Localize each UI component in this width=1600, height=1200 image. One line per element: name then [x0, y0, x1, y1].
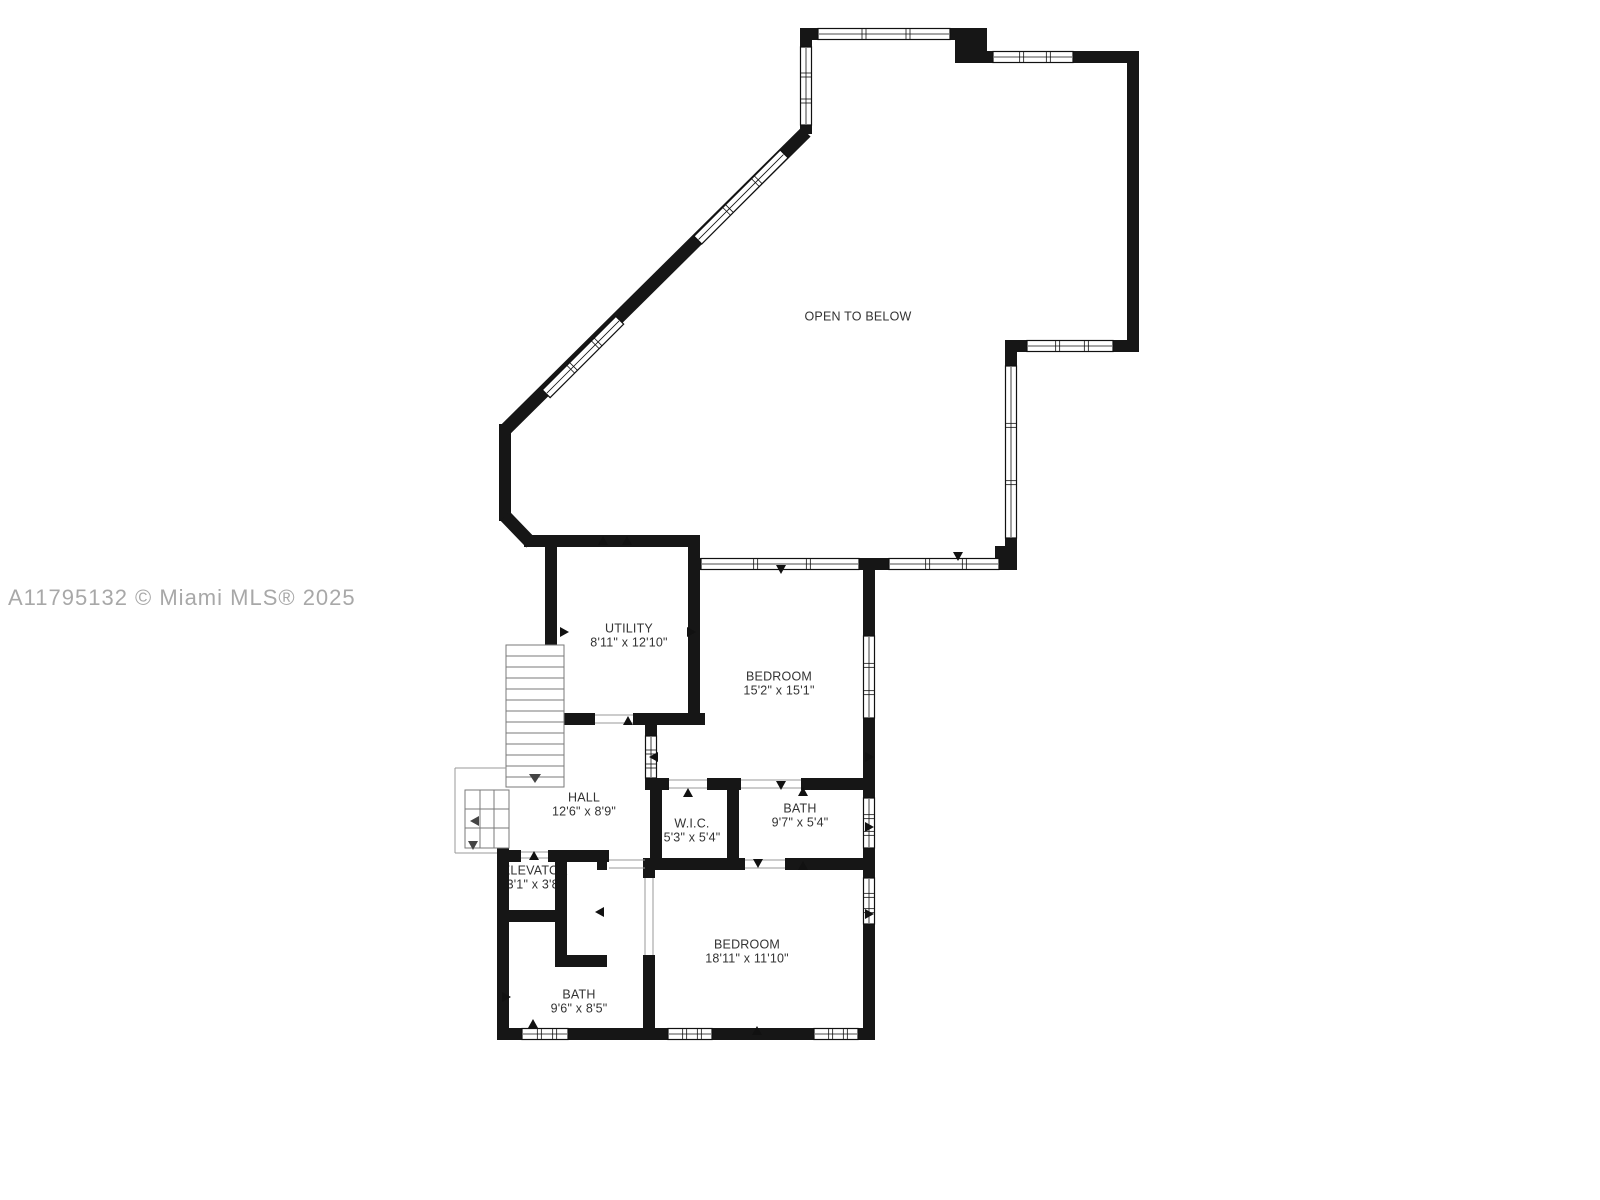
room-dimensions: 9'6" x 8'5": [551, 1002, 608, 1016]
room-dimensions: 9'7" x 5'4": [772, 816, 829, 830]
room-dimensions: 8'11" x 12'10": [590, 636, 667, 650]
room-dimensions: 18'11" x 11'10": [705, 952, 789, 966]
room-label-utility: UTILITY 8'11" x 12'10": [590, 623, 667, 650]
room-name: UTILITY: [590, 623, 667, 637]
watermark: A11795132 © Miami MLS® 2025: [8, 585, 356, 611]
room-name: BATH: [772, 803, 829, 817]
room-dimensions: 5'3" x 5'4": [664, 831, 721, 845]
room-name: W.I.C.: [664, 818, 721, 832]
room-name: BEDROOM: [743, 671, 814, 685]
room-label-hall: HALL 12'6" x 8'9": [552, 792, 616, 819]
room-label-bath-2: BATH 9'6" x 8'5": [551, 989, 608, 1016]
room-dimensions: 15'2" x 15'1": [743, 684, 814, 698]
room-name: BEDROOM: [705, 939, 789, 953]
room-label-elevator: ELEVATOR 3'1" x 3'8": [502, 865, 568, 892]
room-dimensions: 3'1" x 3'8": [502, 878, 568, 892]
room-label-bath-1: BATH 9'7" x 5'4": [772, 803, 829, 830]
room-name: OPEN TO BELOW: [804, 310, 911, 324]
room-name: HALL: [552, 792, 616, 806]
room-dimensions: 12'6" x 8'9": [552, 805, 616, 819]
room-label-bedroom-2: BEDROOM 18'11" x 11'10": [705, 939, 789, 966]
room-label-bedroom-1: BEDROOM 15'2" x 15'1": [743, 671, 814, 698]
room-name: BATH: [551, 989, 608, 1003]
room-name: ELEVATOR: [502, 865, 568, 879]
room-label-wic: W.I.C. 5'3" x 5'4": [664, 818, 721, 845]
room-label-open-to-below: OPEN TO BELOW: [804, 310, 911, 324]
label-layer: A11795132 © Miami MLS® 2025 OPEN TO BELO…: [0, 0, 1600, 1200]
floorplan-page: A11795132 © Miami MLS® 2025 OPEN TO BELO…: [0, 0, 1600, 1200]
